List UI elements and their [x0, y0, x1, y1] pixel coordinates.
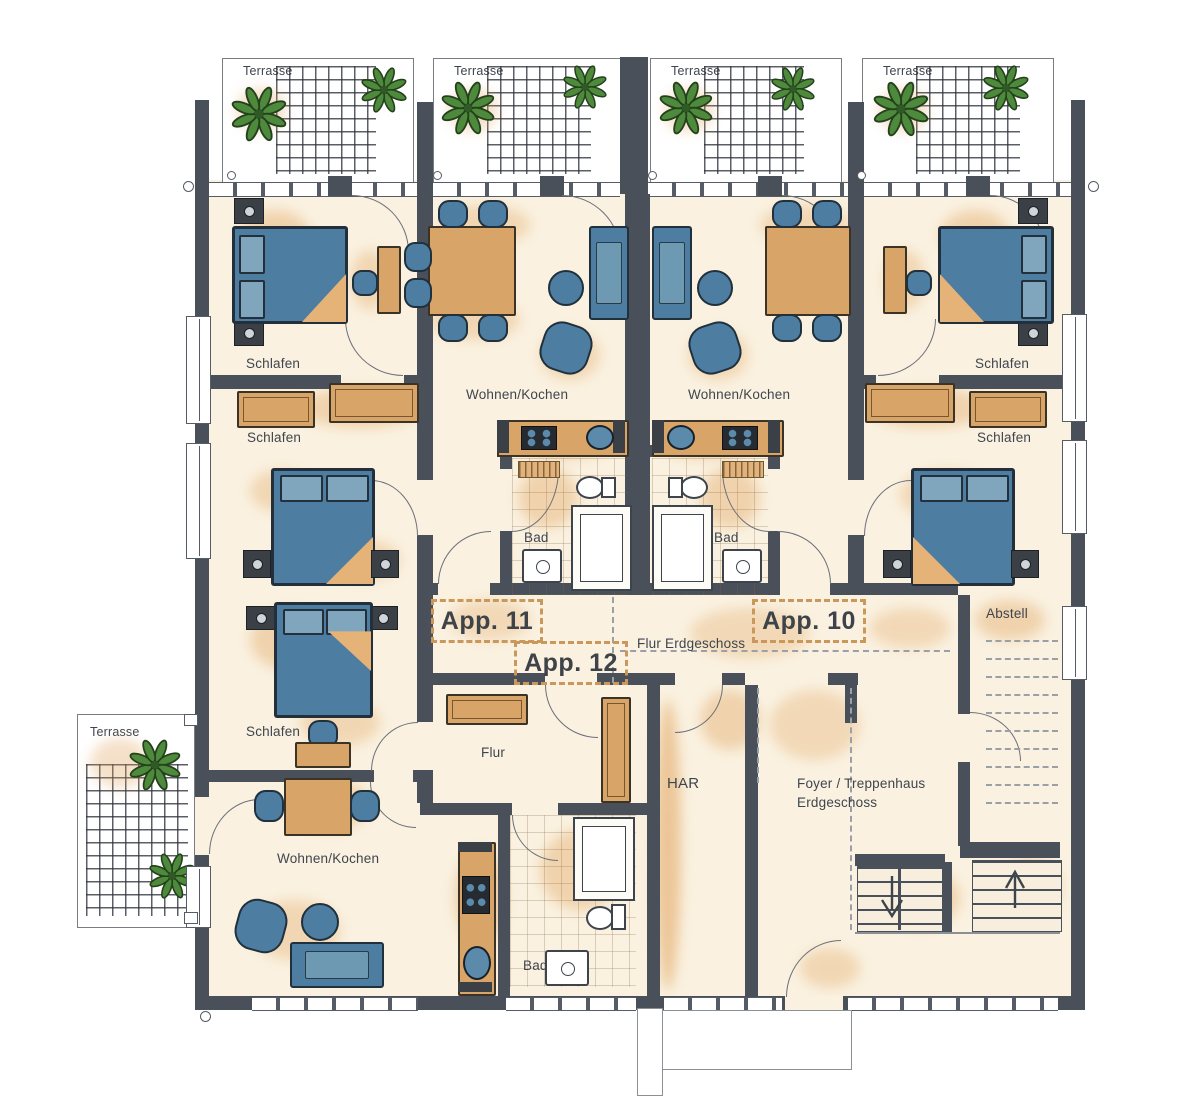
window-band	[433, 182, 620, 197]
toilet	[576, 476, 604, 499]
chair	[772, 314, 802, 342]
wardrobe	[969, 391, 1047, 428]
dashed-projection-line	[986, 748, 1058, 750]
nightstand	[246, 606, 276, 630]
wall-segment	[939, 375, 1071, 389]
wall-segment	[855, 854, 945, 866]
chair	[438, 200, 468, 228]
plant-icon	[658, 80, 714, 136]
room-label-schlafen-5: Schlafen	[246, 724, 300, 739]
shower	[571, 505, 632, 591]
chair	[350, 790, 380, 822]
cooktop	[722, 426, 758, 450]
wardrobe	[237, 391, 315, 428]
round-table	[548, 270, 584, 306]
blanket-fold	[940, 274, 984, 322]
reference-marker	[433, 171, 442, 180]
counter-end	[458, 842, 492, 852]
kitchen-sink	[667, 425, 695, 450]
reference-marker	[1088, 181, 1099, 192]
washbasin	[545, 950, 589, 986]
wall-segment	[647, 685, 660, 996]
wall-segment	[1071, 100, 1085, 194]
desk-chair	[906, 270, 932, 296]
bed-pillow	[966, 475, 1009, 501]
sofa	[589, 226, 629, 320]
plant-icon	[230, 85, 288, 143]
toilet-tank	[601, 477, 616, 498]
room-label-foyer-line2: Erdgeschoss	[797, 795, 877, 810]
reference-marker	[200, 1011, 211, 1022]
wall-segment	[558, 803, 647, 815]
wall-segment	[328, 176, 352, 196]
wall-segment	[413, 770, 433, 782]
wall-opening	[785, 996, 843, 1010]
counter-end	[613, 420, 625, 453]
room-label-wohnen-kochen-2: Wohnen/Kochen	[688, 387, 790, 402]
apartment-badge-app-12: App. 12	[514, 641, 628, 685]
room-label-har: HAR	[667, 775, 699, 792]
dashed-projection-line	[986, 712, 1058, 714]
sofa	[290, 942, 384, 988]
dashed-projection-line	[986, 766, 1058, 768]
plant-icon	[770, 66, 816, 112]
desk-chair	[352, 270, 378, 296]
window	[186, 443, 211, 559]
wall-segment	[540, 176, 564, 196]
wall-segment	[620, 57, 648, 194]
room-label-wohnen-kochen-3: Wohnen/Kochen	[277, 851, 379, 866]
room-label-foyer-line1: Foyer / Treppenhaus	[797, 776, 925, 791]
window-band	[252, 997, 418, 1011]
wall-segment	[958, 762, 970, 846]
wall-segment	[966, 176, 990, 196]
double-bed	[232, 226, 348, 324]
plant-icon	[872, 80, 930, 138]
plant-icon	[360, 66, 408, 114]
wall-segment	[498, 815, 510, 996]
shower	[573, 817, 635, 901]
chair	[254, 790, 284, 822]
bed-pillow	[239, 280, 265, 319]
plant-icon	[562, 64, 608, 110]
dashed-projection-line	[986, 640, 1058, 642]
washbasin	[522, 549, 562, 583]
kitchen-sink	[463, 946, 491, 980]
room-label-schlafen-1: Schlafen	[246, 356, 300, 371]
wall-segment	[960, 842, 1060, 858]
blanket-fold	[913, 537, 960, 584]
plant-icon	[440, 80, 496, 136]
window	[186, 316, 211, 424]
room-label-flur: Flur	[481, 745, 505, 760]
desk	[295, 742, 351, 768]
chair	[478, 200, 508, 228]
bed-pillow	[239, 235, 265, 274]
dashed-projection-line	[986, 784, 1058, 786]
counter-end	[768, 420, 780, 453]
wall-segment	[828, 673, 858, 685]
blanket-fold	[326, 537, 373, 584]
bed-pillow	[326, 475, 369, 501]
floor-plan: Terrasse Terrasse Terrasse Terrasse Terr…	[0, 0, 1200, 1103]
reference-marker	[183, 181, 194, 192]
apartment-badge-app-10: App. 10	[752, 599, 866, 643]
window	[1062, 606, 1087, 680]
window-band	[848, 997, 1058, 1011]
stair-direction-arrow	[878, 872, 906, 924]
wardrobe	[865, 383, 955, 423]
nightstand	[371, 550, 399, 578]
wall-segment	[848, 102, 864, 194]
desk	[883, 246, 907, 314]
wall-segment	[209, 375, 341, 389]
toilet-tank	[611, 904, 626, 930]
wall-segment	[768, 457, 780, 469]
floor-edge-line	[855, 932, 1060, 934]
double-bed	[274, 602, 373, 718]
watercolor-shading	[870, 608, 950, 648]
wall-segment	[420, 803, 512, 815]
nightstand	[1018, 198, 1048, 224]
dining-table	[428, 226, 516, 316]
round-table	[697, 270, 733, 306]
sideboard	[446, 694, 528, 725]
window-band	[664, 997, 782, 1011]
window-band	[648, 182, 848, 197]
chair	[812, 200, 842, 228]
dashed-projection-line	[986, 730, 1058, 732]
kitchen-sink	[586, 425, 614, 450]
dining-table	[284, 778, 352, 836]
wall-segment	[417, 102, 433, 194]
wall-segment	[195, 100, 209, 194]
double-bed	[271, 468, 375, 586]
counter-end	[497, 420, 509, 453]
apartment-badge-app-11: App. 11	[431, 599, 543, 643]
dashed-projection-line	[986, 802, 1058, 804]
room-label-abstell: Abstell	[986, 606, 1028, 621]
window-band	[506, 997, 636, 1011]
room-label-flur-erdgeschoss: Flur Erdgeschoss	[637, 636, 745, 651]
window	[1062, 314, 1087, 422]
window	[1062, 440, 1087, 534]
wall-opening	[195, 797, 209, 855]
window-band	[209, 182, 417, 197]
double-bed	[938, 226, 1054, 324]
wall-segment	[958, 595, 970, 714]
bed-pillow	[283, 609, 324, 635]
bed-pillow	[1021, 280, 1047, 319]
dashed-projection-line	[986, 694, 1058, 696]
wardrobe	[329, 383, 419, 423]
washbasin	[722, 549, 762, 583]
nightstand	[234, 198, 264, 224]
chair	[812, 314, 842, 342]
entrance-porch	[660, 1010, 852, 1070]
room-label-schlafen-3: Schlafen	[975, 356, 1029, 371]
radiator	[722, 461, 764, 478]
room-label-bad-2: Bad	[714, 530, 739, 545]
chair	[438, 314, 468, 342]
cooktop	[462, 876, 490, 914]
dashed-projection-line	[757, 688, 759, 783]
radiator	[518, 461, 560, 478]
cooktop	[521, 426, 557, 450]
double-bed	[911, 468, 1015, 586]
chair	[478, 314, 508, 342]
toilet	[586, 906, 614, 930]
apartment-badge-text-11: App. 11	[441, 607, 533, 636]
chair	[404, 242, 432, 272]
room-label-schlafen-4: Schlafen	[977, 430, 1031, 445]
room-label-bad-3: Bad	[523, 958, 548, 973]
reference-marker	[648, 171, 657, 180]
nightstand	[883, 550, 911, 578]
bed-pillow	[280, 475, 323, 501]
bed-pillow	[1021, 235, 1047, 274]
chair	[404, 278, 432, 308]
reference-marker	[857, 171, 866, 180]
toilet-tank	[668, 477, 683, 498]
plant-icon	[982, 64, 1030, 112]
room-label-terrasse-5: Terrasse	[90, 725, 140, 739]
nightstand	[1011, 550, 1039, 578]
terrace-joint	[184, 912, 198, 924]
room-label-wohnen-kochen-1: Wohnen/Kochen	[466, 387, 568, 402]
shower	[652, 505, 713, 591]
dashed-projection-line	[986, 658, 1058, 660]
wall-segment	[758, 176, 782, 196]
wall-segment	[500, 457, 512, 469]
room-label-bad-1: Bad	[524, 530, 549, 545]
blanket-fold	[302, 274, 346, 322]
stair-direction-arrow	[1002, 864, 1028, 912]
toilet	[680, 476, 708, 499]
apartment-badge-text-10: App. 10	[762, 607, 856, 636]
wall-segment	[722, 673, 745, 685]
reference-marker	[227, 171, 236, 180]
dashed-projection-line	[986, 676, 1058, 678]
terrace-joint	[184, 714, 198, 726]
tall-cabinet	[601, 697, 631, 803]
sofa	[652, 226, 692, 320]
entrance-pier	[637, 1008, 663, 1096]
wall-segment	[433, 583, 438, 595]
bed-pillow	[920, 475, 963, 501]
plant-icon	[128, 738, 182, 792]
desk	[377, 246, 401, 314]
nightstand	[243, 550, 271, 578]
counter-end	[652, 420, 664, 453]
apartment-badge-text-12: App. 12	[524, 649, 618, 678]
chair	[772, 200, 802, 228]
room-label-schlafen-2: Schlafen	[247, 430, 301, 445]
blanket-fold	[328, 631, 371, 671]
counter-end	[458, 982, 492, 992]
round-table	[301, 903, 339, 941]
dining-table	[765, 226, 851, 316]
